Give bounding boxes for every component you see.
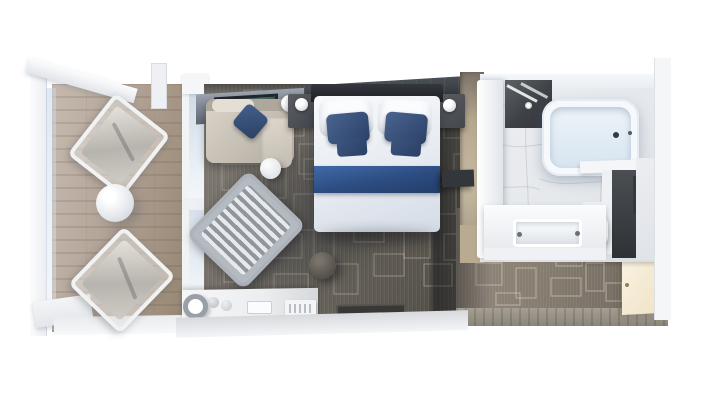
sink-faucet [517,232,522,237]
bed-runner-navy [314,166,440,193]
desk-stool [208,297,219,308]
shower-head [525,102,532,109]
vanity-sink [513,219,582,247]
bathtub-faucet [628,131,632,135]
round-ottoman [309,252,336,279]
bathtub-basin [550,107,631,168]
balcony-glass-railing-frame [30,72,47,336]
desk-tray [247,301,272,314]
vanity-front-panel [484,248,606,260]
bed-shadow [320,231,436,243]
shower-glass-edge [506,84,537,103]
round-side-table [260,158,281,179]
balcony-railing-glass [46,88,56,324]
stateroom-floorplan-render [0,0,726,408]
wall-mounted-shelf [442,169,475,187]
bed-cushion-navy [390,138,421,157]
amenity-ridges [289,304,312,313]
balcony-divider-post [151,63,167,109]
table-mirror [183,294,208,319]
door-handle [625,283,629,287]
bedside-lamp-right [443,99,456,112]
bathtub-drain [613,132,619,138]
outer-wall-right [654,58,671,320]
desk-stool [221,300,232,311]
sink-faucet [575,231,580,236]
bed-cushion-navy [336,138,367,157]
balcony-round-table [96,184,134,222]
bedside-lamp-left [295,98,308,111]
